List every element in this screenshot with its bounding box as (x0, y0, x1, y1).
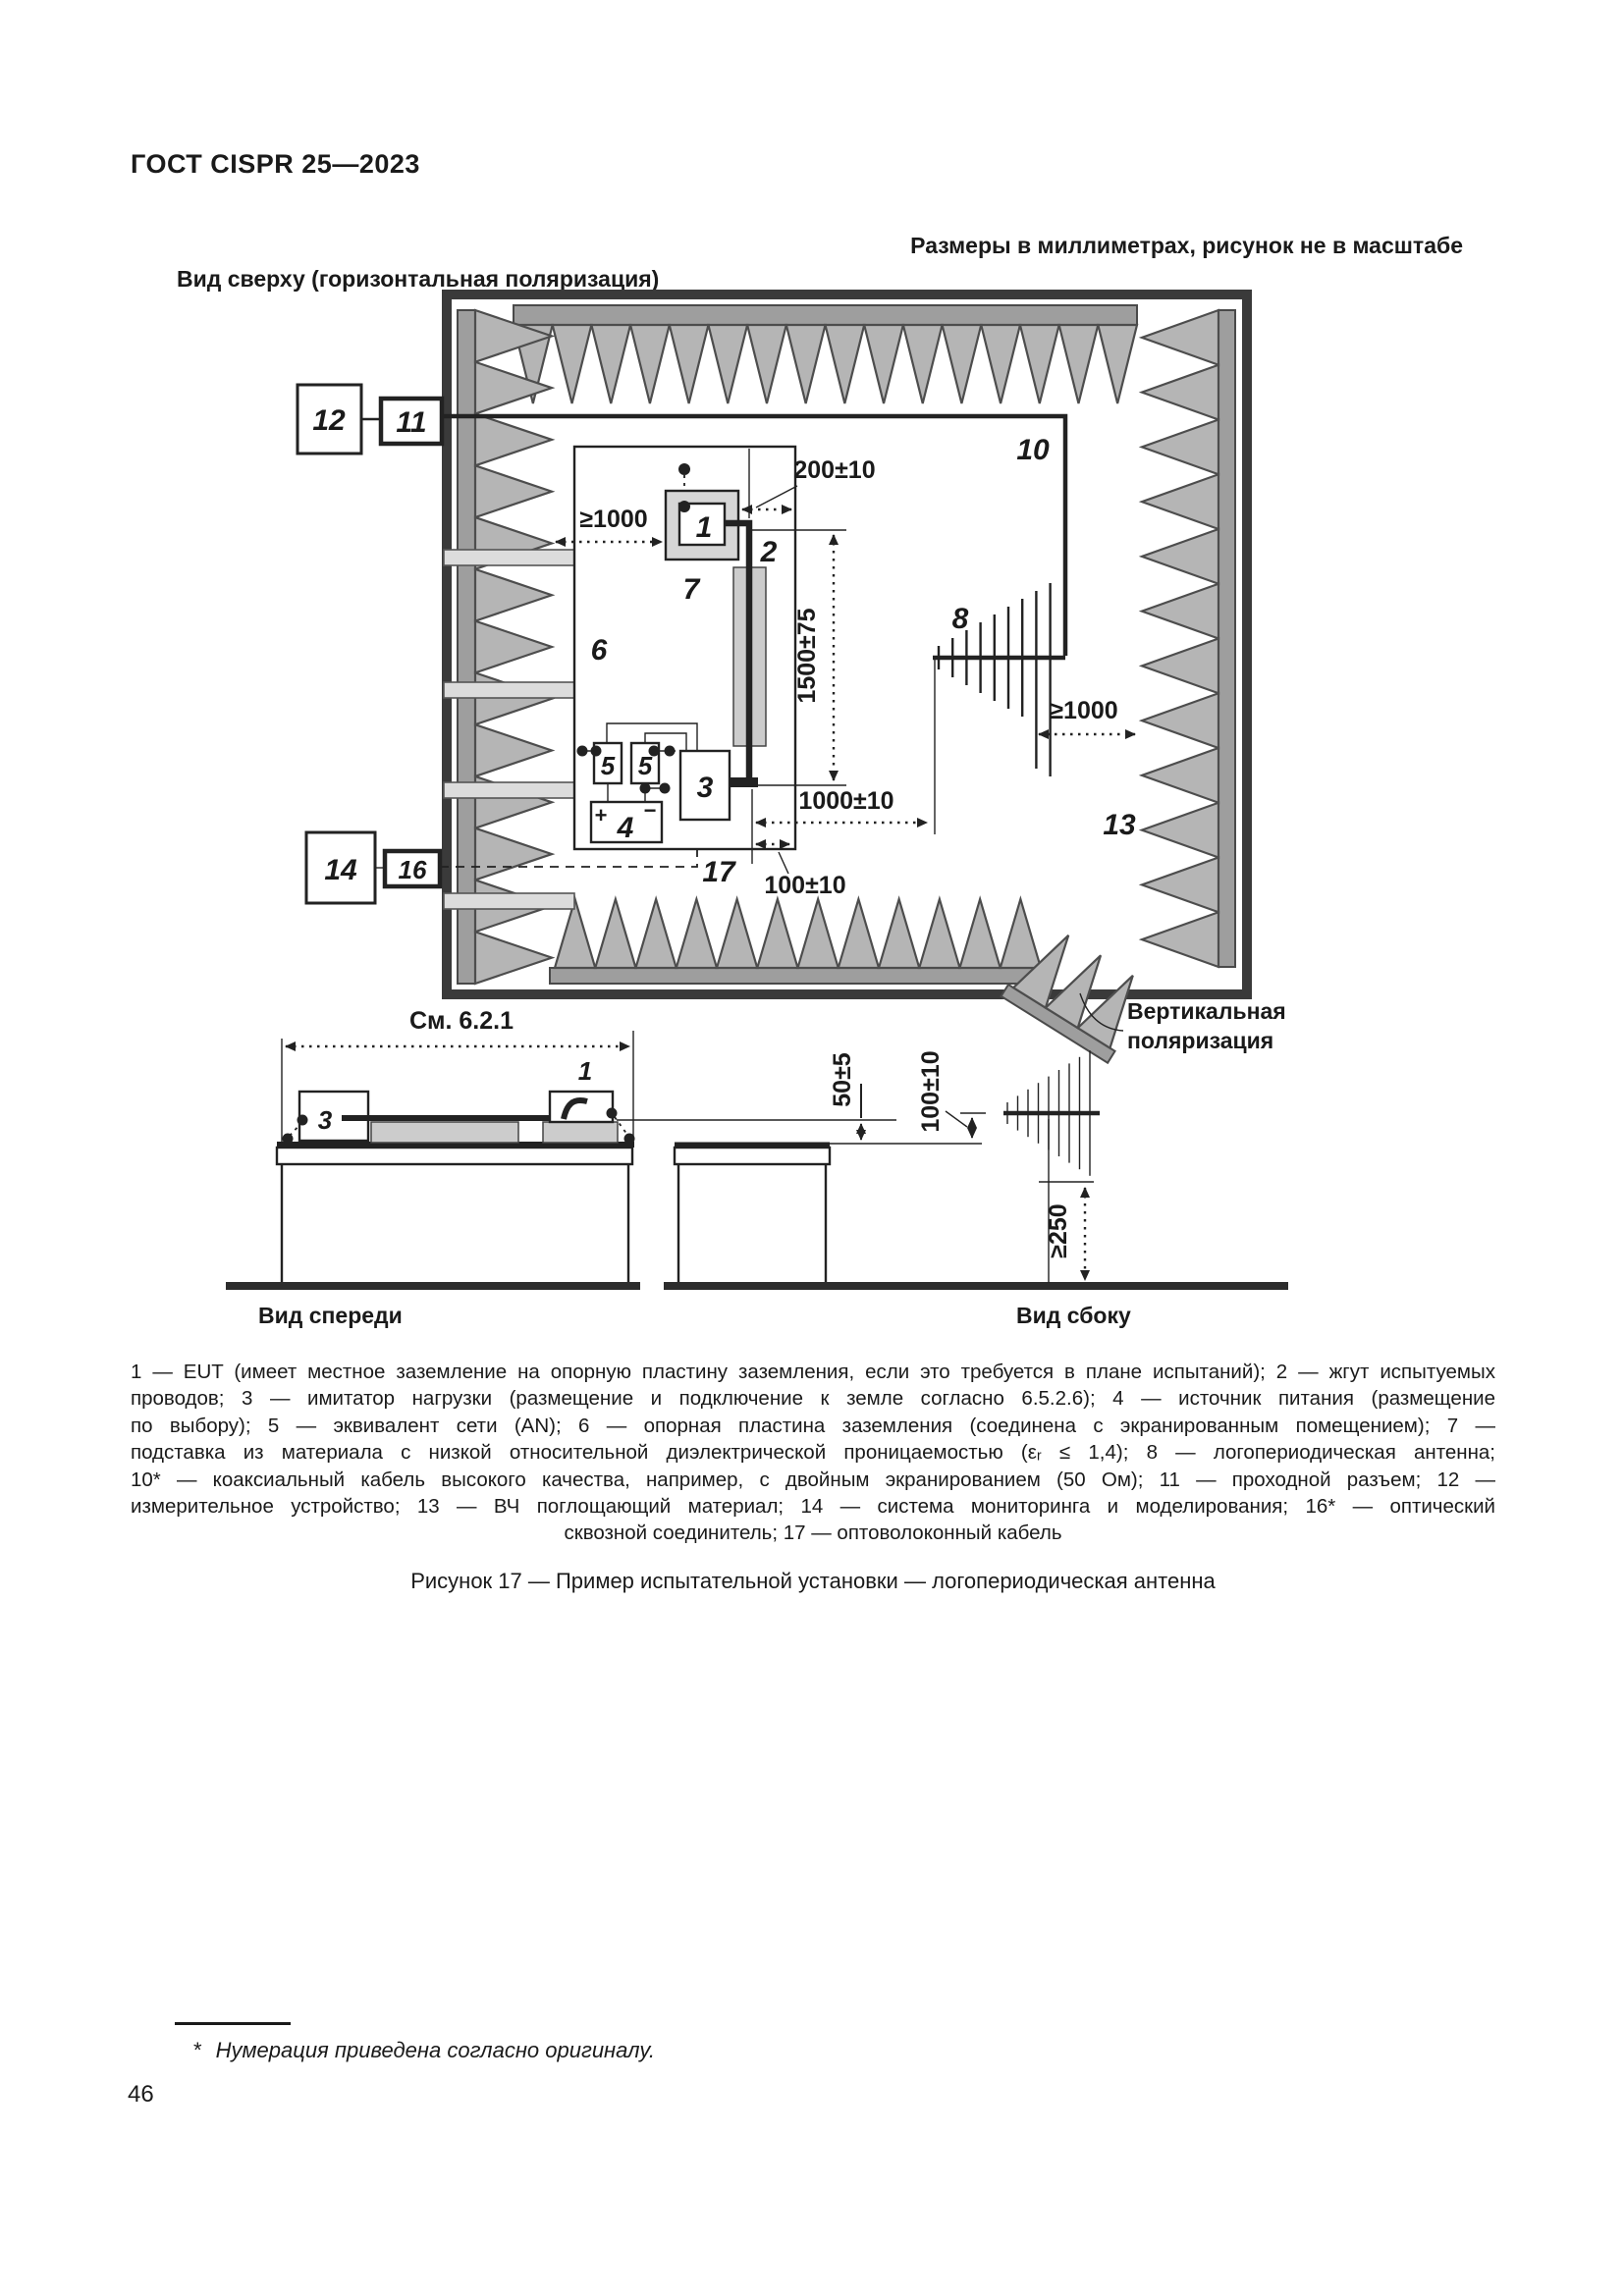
absorber-row-top (514, 325, 1137, 403)
absorber-cone (1142, 693, 1218, 748)
absorber-cone (717, 899, 757, 968)
legend-line: 10* — коаксиальный кабель высокого качес… (131, 1467, 1495, 1493)
absorber-cone (630, 325, 670, 403)
dim-200: 200±10 (793, 456, 875, 484)
dim-1000-left: ≥1000 (579, 506, 647, 533)
top-view: 12 11 10 14 16 17 6 7 (298, 294, 1247, 1063)
absorber-cone (475, 465, 552, 517)
an-port-dot (591, 746, 602, 757)
figure-17-drawing: Вид сверху (горизонтальная поляризация) … (0, 0, 1624, 1355)
absorber-cone (475, 932, 552, 984)
legend-line: сквозной соединитель; 17 — оптоволоконны… (131, 1520, 1495, 1546)
an-port-dot (649, 746, 660, 757)
absorber-cone (475, 621, 552, 673)
label-14: 14 (324, 854, 357, 886)
harness-support-slab (371, 1122, 518, 1143)
minus-sign: − (644, 798, 657, 823)
front-view: См. 6.2.1 3 1 Вид спереди (226, 1007, 896, 1328)
an-port-dot (665, 746, 676, 757)
dim-leader (779, 852, 788, 874)
absorber-cone (1142, 858, 1218, 913)
absorber-cone (1142, 748, 1218, 803)
legend-line: 1 — EUT (имеет местное заземление на опо… (131, 1359, 1495, 1385)
absorber-cone (1020, 325, 1059, 403)
ground-dot (624, 1134, 635, 1145)
label-10: 10 (1016, 434, 1050, 466)
legend-line: измерительное устройство; 13 — ВЧ поглощ… (131, 1493, 1495, 1520)
label-17: 17 (702, 856, 736, 888)
absorber-cone (879, 899, 919, 968)
absorber-cone (475, 414, 552, 466)
footnote-star: * (193, 2038, 216, 2062)
absorber-cone (757, 899, 797, 968)
absorber-cone (475, 569, 552, 621)
chamber-wall (447, 294, 1247, 994)
wall-feedthrough-bar (444, 682, 574, 698)
absorber-cone (1142, 420, 1218, 475)
absorber-cone (1142, 474, 1218, 529)
front-view-label: Вид спереди (258, 1303, 403, 1328)
dim-1000: 1000±10 (798, 787, 893, 815)
label-7: 7 (683, 573, 701, 606)
dim-1000-right: ≥1000 (1050, 697, 1117, 724)
absorber-cone (591, 325, 630, 403)
an-port-dot (577, 746, 588, 757)
label-4: 4 (617, 812, 634, 844)
absorber-cone (1059, 325, 1099, 403)
absorber-backing-top (514, 305, 1137, 325)
top-view-label: Вид сверху (горизонтальная поляризация) (177, 266, 659, 292)
absorber-cone (475, 828, 552, 881)
label-11: 11 (396, 406, 426, 439)
absorber-cone (903, 325, 943, 403)
absorber-cone (1001, 899, 1041, 968)
dim-50: 50±5 (829, 1052, 856, 1107)
label-1-front: 1 (578, 1056, 592, 1086)
legend-line: проводов; 3 — имитатор нагрузки (размеще… (131, 1385, 1495, 1412)
absorber-cone (475, 724, 552, 776)
an-port-dot (660, 783, 671, 794)
label-1: 1 (696, 511, 713, 544)
label-8: 8 (952, 603, 969, 635)
side-view-label: Вид сбоку (1016, 1303, 1131, 1328)
absorber-backing-bottom (550, 968, 1041, 984)
absorber-cone (708, 325, 747, 403)
legend-line: по выбору); 5 — эквивалент сети (AN); 6 … (131, 1413, 1495, 1439)
absorber-cone (1142, 803, 1218, 858)
absorber-cone (747, 325, 786, 403)
wall-feedthrough-bar (444, 893, 574, 909)
eut-support-slab (543, 1122, 618, 1143)
absorber-cone (670, 325, 709, 403)
table-top-front (277, 1148, 632, 1164)
label-5: 5 (601, 751, 616, 780)
absorber-row-right (1142, 310, 1218, 967)
label-2: 2 (760, 536, 778, 568)
absorber-row-left (475, 310, 552, 984)
absorber-cone (798, 899, 839, 968)
absorber-cone (553, 325, 592, 403)
wall-feedthrough-bar (444, 782, 574, 798)
absorber-cone (864, 325, 903, 403)
see-ref-label: См. 6.2.1 (409, 1007, 514, 1035)
ground-dot (678, 501, 690, 512)
dim-1500: 1500±75 (793, 608, 821, 703)
figure-caption: Рисунок 17 — Пример испытательной устано… (131, 1569, 1495, 1594)
table-top-side (675, 1148, 830, 1164)
absorber-cone (839, 899, 879, 968)
footnote: *Нумерация приведена согласно оригиналу. (193, 2038, 655, 2063)
absorber-cone (1142, 584, 1218, 639)
footnote-rule (175, 2022, 291, 2025)
dim-250: ≥250 (1045, 1203, 1072, 1257)
vertical-polarization-label-1: Вертикальная (1127, 998, 1286, 1024)
absorber-cone (677, 899, 717, 968)
label-16: 16 (399, 855, 427, 884)
absorber-cone (1142, 529, 1218, 584)
absorber-backing-right (1218, 310, 1235, 967)
wall-feedthrough-bar (444, 550, 574, 565)
absorber-cone (1142, 310, 1218, 365)
label-3-front: 3 (318, 1105, 333, 1135)
absorber-cone (943, 325, 982, 403)
page-number: 46 (128, 2081, 154, 2109)
label-12: 12 (312, 404, 346, 437)
units-note: Размеры в миллиметрах, рисунок не в масш… (910, 233, 1463, 258)
absorber-cone (1142, 639, 1218, 694)
eut-front (550, 1092, 613, 1122)
absorber-cone (636, 899, 677, 968)
document-page: ГОСТ CISPR 25—2023 Вид сверху (горизонта… (0, 0, 1624, 2296)
label-3: 3 (697, 772, 714, 804)
absorber-cone (1098, 325, 1137, 403)
absorber-cone (826, 325, 865, 403)
ground-dot (298, 1115, 308, 1126)
dim-100: 100±10 (764, 872, 845, 899)
legend-line: подставка из материала с низкой относите… (131, 1439, 1495, 1466)
absorber-cone (919, 899, 959, 968)
ground-dot (678, 463, 690, 475)
vertical-polarization-label-2: поляризация (1127, 1028, 1273, 1053)
absorber-cone (981, 325, 1020, 403)
absorber-cone (1142, 912, 1218, 967)
figure-legend: 1 — EUT (имеет местное заземление на опо… (131, 1359, 1495, 1547)
label-6: 6 (591, 634, 608, 667)
absorber-cone (786, 325, 826, 403)
absorber-backing-left (458, 310, 475, 984)
absorber-row-bottom (555, 899, 1041, 968)
absorber-cone (1142, 365, 1218, 420)
label-13: 13 (1103, 809, 1136, 841)
label-5b: 5 (638, 751, 653, 780)
dim-100v: 100±10 (917, 1050, 945, 1132)
absorber-cone (960, 899, 1001, 968)
plus-sign: + (595, 803, 608, 828)
absorber-cone (595, 899, 635, 968)
footnote-text: Нумерация приведена согласно оригиналу. (216, 2038, 655, 2062)
side-view: 50±5 100±10 ≥250 Вид сбоку (664, 1050, 1288, 1328)
